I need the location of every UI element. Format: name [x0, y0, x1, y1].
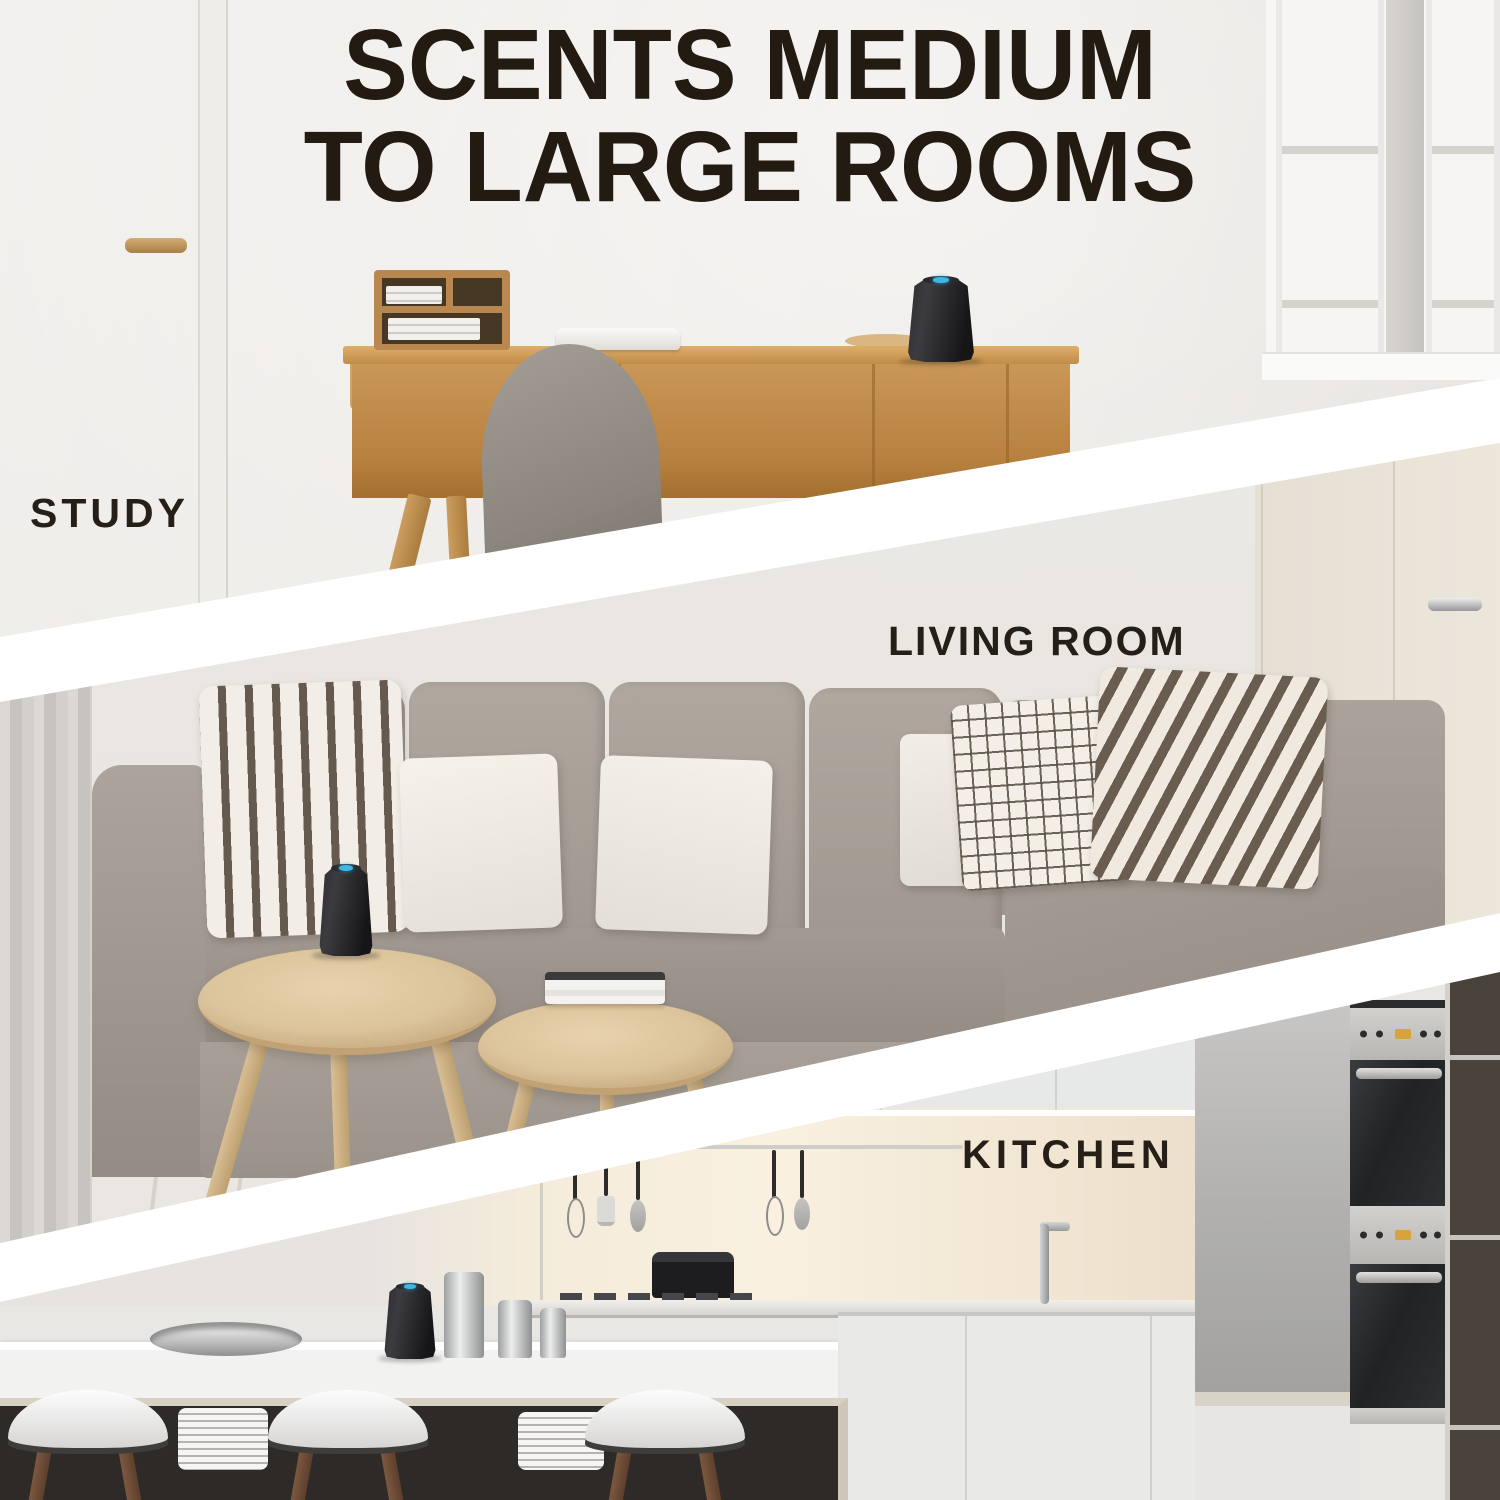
plate-stack	[178, 1408, 268, 1470]
whisk-head	[766, 1196, 784, 1236]
shelf-frame	[1450, 1055, 1500, 1060]
oven-knob	[1420, 1031, 1427, 1038]
oven-control-panel	[1350, 1008, 1448, 1060]
door-handle	[125, 238, 187, 253]
double-wall-oven	[1350, 1000, 1448, 1424]
diffuser-body	[906, 279, 976, 362]
diffuser-body	[383, 1286, 437, 1359]
pillow-striped-diagonal	[1090, 666, 1329, 890]
oven-knob	[1434, 1232, 1441, 1239]
oven-knob	[1420, 1232, 1427, 1239]
drawer-seam	[1006, 364, 1009, 498]
window-mullion	[1386, 0, 1424, 378]
desk-drawers	[352, 364, 1070, 498]
cabinet-base	[1195, 1406, 1360, 1500]
window-pane-column	[1426, 0, 1500, 356]
diffuser-body	[318, 868, 374, 956]
oven-display	[1395, 1029, 1411, 1039]
utensil-rail	[558, 1145, 963, 1149]
living-room-label: LIVING ROOM	[888, 618, 1186, 665]
coffee-table-small	[478, 1000, 733, 1095]
steel-canister	[540, 1308, 566, 1358]
counter-ledge	[1195, 1392, 1360, 1406]
oven-knob	[1376, 1031, 1383, 1038]
metal-bowl	[150, 1322, 302, 1356]
pillow-white	[399, 753, 563, 932]
whisk-utensil	[565, 1152, 585, 1248]
oven-handle	[1356, 1068, 1442, 1079]
headline: SCENTS MEDIUM TO LARGE ROOMS	[168, 14, 1332, 218]
whisk-head	[567, 1198, 585, 1238]
papers-stack	[386, 286, 442, 304]
kitchen-label: KITCHEN	[962, 1133, 1175, 1178]
power-indicator-icon	[933, 277, 950, 283]
shelf-frame	[1450, 1235, 1500, 1240]
books-stack	[545, 972, 665, 1004]
headline-line1: SCENTS MEDIUM	[168, 14, 1332, 116]
curtain	[0, 640, 92, 1250]
oven-door	[1350, 1060, 1448, 1206]
whisk-utensil	[764, 1150, 784, 1246]
oven-knob	[1376, 1232, 1383, 1239]
diffuser-device	[318, 864, 374, 956]
spatula-utensil	[596, 1148, 616, 1244]
spoon-utensil	[792, 1150, 812, 1246]
coffee-table-large	[198, 948, 496, 1055]
headline-line2: TO LARGE ROOMS	[168, 116, 1332, 218]
oven-control-panel	[1350, 1206, 1448, 1264]
utensil-handle	[772, 1150, 776, 1198]
steel-canister	[444, 1272, 484, 1358]
cooking-pot	[652, 1252, 734, 1298]
organizer-shelf	[382, 306, 502, 313]
steel-canister	[498, 1300, 532, 1358]
utensil-handle	[573, 1152, 577, 1200]
faucet	[1040, 1224, 1049, 1304]
organizer-divider	[446, 278, 453, 306]
sofa-armrest	[92, 765, 207, 1177]
spoon-utensil	[628, 1152, 648, 1248]
oven-handle	[1356, 1272, 1442, 1283]
oven-knob	[1434, 1031, 1441, 1038]
cabinet-seam	[1150, 1316, 1152, 1500]
cabinet-seam	[965, 1316, 967, 1500]
oven-knob	[1360, 1031, 1367, 1038]
oven-knob	[1360, 1232, 1367, 1239]
wardrobe-handle	[1428, 598, 1482, 611]
shelf-frame	[1450, 1425, 1500, 1430]
backsplash-divider	[540, 1118, 543, 1302]
pillow-white	[595, 755, 773, 935]
utensil-handle	[604, 1148, 608, 1196]
oven-display	[1395, 1230, 1411, 1240]
diffuser-device	[383, 1283, 437, 1359]
window-sill	[1262, 352, 1500, 380]
product-lifestyle-image: SCENTS MEDIUM TO LARGE ROOMS	[0, 0, 1500, 1500]
spatula-head	[597, 1196, 615, 1226]
oven-base-trim	[1350, 1408, 1448, 1424]
spoon-head	[630, 1200, 646, 1232]
shelf-unit	[1445, 950, 1500, 1500]
drawer-seam	[872, 364, 875, 498]
spoon-head	[794, 1198, 810, 1230]
papers-stack	[388, 318, 480, 340]
diffuser-device	[906, 276, 976, 362]
window-pane-glass	[1426, 0, 1500, 356]
study-label: STUDY	[30, 490, 189, 537]
pillow-striped	[199, 680, 410, 939]
utensil-handle	[636, 1152, 640, 1200]
kitchen-side-wall	[1195, 955, 1360, 1400]
utensil-handle	[800, 1150, 804, 1198]
oven-door	[1350, 1264, 1448, 1408]
desk-organizer	[374, 270, 510, 350]
